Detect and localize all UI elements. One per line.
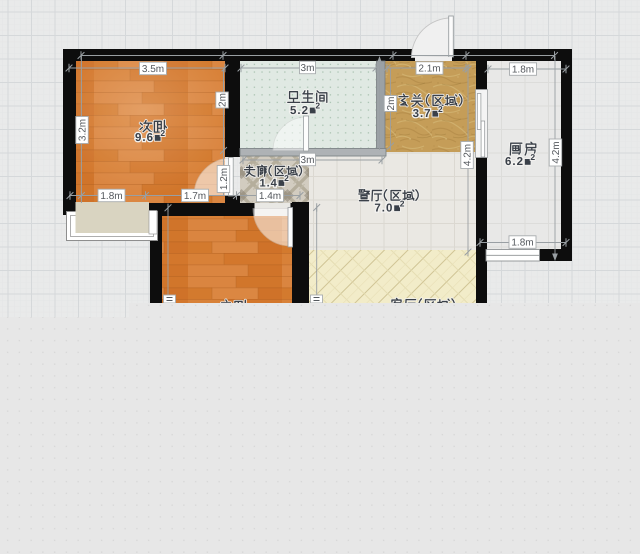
svg-text:1.2m: 1.2m xyxy=(219,168,230,190)
svg-text:2: 2 xyxy=(315,101,320,111)
svg-text:3.5m: 3.5m xyxy=(142,64,164,75)
svg-text:7.0: 7.0 xyxy=(374,203,393,215)
svg-text:6.2: 6.2 xyxy=(505,156,524,168)
svg-text:3m: 3m xyxy=(301,63,315,74)
svg-text:1.8m: 1.8m xyxy=(100,191,122,202)
svg-text:2m: 2m xyxy=(218,93,229,107)
svg-text:4.2m: 4.2m xyxy=(463,144,474,166)
svg-text:1.4: 1.4 xyxy=(260,177,278,189)
svg-text:9.6: 9.6 xyxy=(135,132,154,144)
svg-text:2.1m: 2.1m xyxy=(418,64,440,75)
svg-text:2: 2 xyxy=(400,198,405,208)
svg-text:2m: 2m xyxy=(386,97,397,111)
svg-text:2: 2 xyxy=(438,104,443,114)
svg-text:1.7m: 1.7m xyxy=(184,191,206,202)
svg-text:3m: 3m xyxy=(301,155,315,166)
svg-text:2: 2 xyxy=(284,173,289,183)
svg-text:3.2m: 3.2m xyxy=(78,119,89,141)
svg-text:3.7: 3.7 xyxy=(413,108,432,120)
svg-text:2: 2 xyxy=(530,152,535,162)
svg-text:1.4m: 1.4m xyxy=(259,191,281,202)
svg-text:1.8m: 1.8m xyxy=(512,65,534,76)
svg-text:4.2m: 4.2m xyxy=(551,141,562,163)
svg-text:2: 2 xyxy=(160,128,165,138)
svg-text:1.8m: 1.8m xyxy=(511,238,533,249)
svg-text:5.2: 5.2 xyxy=(290,105,309,117)
